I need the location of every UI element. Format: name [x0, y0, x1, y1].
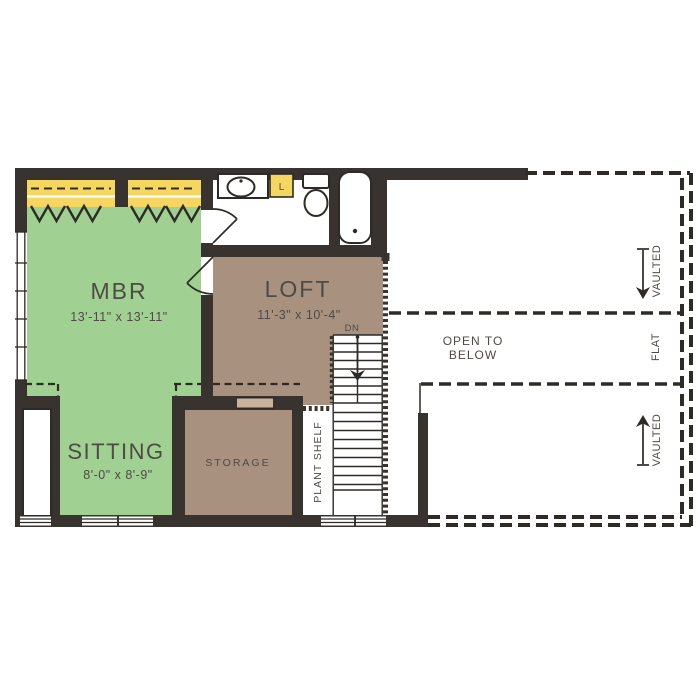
open-to-below-line2: BELOW	[449, 348, 497, 362]
sitting-dims: 8'-0" x 8'-9"	[83, 468, 152, 482]
loft-dims: 11'-3" x 10'-4"	[257, 308, 340, 322]
railing-post	[382, 253, 390, 261]
window-bay	[23, 409, 51, 516]
roof-outline	[389, 173, 691, 526]
loft-label: LOFT	[265, 276, 332, 302]
floor-plan: MBR 13'-11" x 13'-11" LOFT 11'-3" x 10'-…	[0, 0, 700, 700]
closet-right	[128, 180, 201, 207]
toilet-bowl	[305, 190, 328, 216]
bath-door-leaf	[213, 219, 237, 243]
open-to-below-line1: OPEN TO	[443, 334, 504, 348]
flat-label: FLAT	[650, 333, 662, 361]
vaulted-upper-label: VAULTED	[651, 245, 663, 298]
vault-arrows	[636, 249, 650, 465]
vault-arrow-upper	[636, 249, 650, 299]
bathtub-drain	[353, 229, 357, 233]
bathroom	[218, 172, 371, 243]
sitting-label: SITTING	[67, 439, 164, 464]
sink-faucet	[239, 179, 242, 182]
linen-closet-label: L	[279, 182, 285, 193]
mbr-dims: 13'-11" x 13'-11"	[70, 310, 167, 324]
plant-shelf-label: PLANT SHELF	[312, 421, 324, 502]
stairs-down-label: DN	[345, 323, 360, 334]
closet-left	[27, 180, 115, 207]
toilet-tank	[303, 174, 329, 188]
floor-plan-page: MBR 13'-11" x 13'-11" LOFT 11'-3" x 10'-…	[0, 0, 700, 700]
mbr-label: MBR	[90, 278, 147, 304]
bath-door-swing	[213, 209, 237, 219]
storage-label: STORAGE	[205, 457, 270, 469]
vaulted-lower-label: VAULTED	[651, 414, 663, 467]
vault-arrow-lower	[636, 415, 650, 465]
storage-opening	[237, 399, 273, 408]
